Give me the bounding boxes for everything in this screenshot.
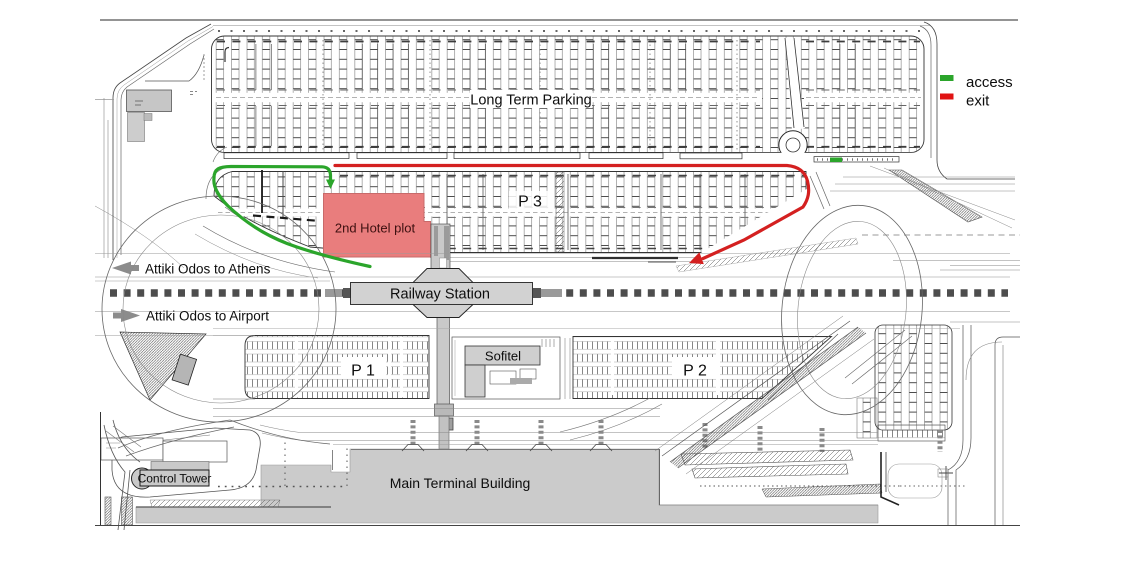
svg-text:P 1: P 1 bbox=[351, 363, 375, 380]
svg-text:Control Tower: Control Tower bbox=[138, 471, 212, 485]
svg-text:exit: exit bbox=[966, 93, 990, 110]
svg-text:P 2: P 2 bbox=[683, 363, 707, 380]
svg-text:Sofitel: Sofitel bbox=[485, 349, 521, 364]
svg-text:Railway Station: Railway Station bbox=[390, 287, 490, 303]
svg-text:Attiki Odos to Airport: Attiki Odos to Airport bbox=[146, 309, 269, 324]
svg-text:2nd Hotel plot: 2nd Hotel plot bbox=[335, 221, 416, 236]
svg-text:Long Term Parking: Long Term Parking bbox=[470, 93, 591, 109]
svg-text:access: access bbox=[966, 74, 1013, 91]
svg-text:Main Terminal Building: Main Terminal Building bbox=[390, 475, 531, 491]
svg-text:P 3: P 3 bbox=[518, 194, 542, 211]
svg-text:Attiki Odos to Athens: Attiki Odos to Athens bbox=[145, 262, 271, 277]
